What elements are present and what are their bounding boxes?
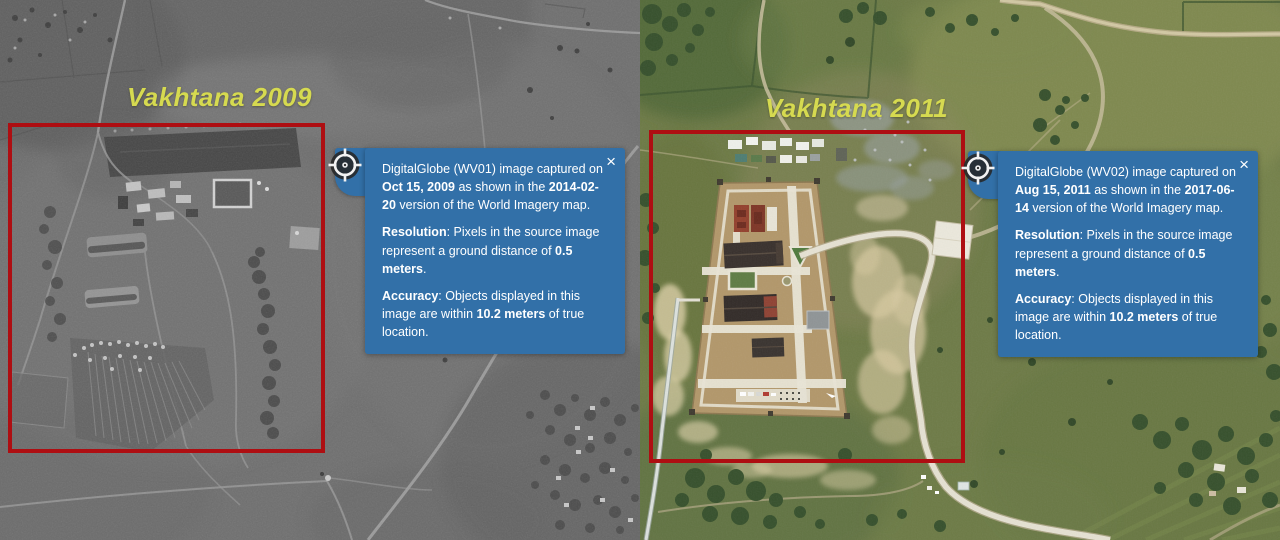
popup-close-button[interactable]: × (606, 153, 616, 170)
highlight-rectangle-2009 (8, 123, 325, 453)
popup-capture-info: DigitalGlobe (WV02) image captured on Au… (1015, 163, 1243, 217)
highlight-rectangle-2011 (649, 130, 965, 463)
popup-resolution-info: Resolution: Pixels in the source image r… (382, 223, 610, 277)
imagery-info-popup-2009: × DigitalGlobe (WV01) image captured on … (365, 148, 625, 354)
popup-resolution-info: Resolution: Pixels in the source image r… (1015, 226, 1243, 280)
map-label-2009: Vakhtana 2009 (127, 84, 312, 110)
crosshair-marker-icon (961, 151, 995, 185)
popup-accuracy-info: Accuracy: Objects displayed in this imag… (382, 287, 610, 341)
popup-capture-info: DigitalGlobe (WV01) image captured on Oc… (382, 160, 610, 214)
map-panel-2011: Vakhtana 2011 × DigitalGlobe (WV02) imag… (640, 0, 1280, 540)
map-panel-2009: Vakhtana 2009 × DigitalGlobe (WV01) imag… (0, 0, 640, 540)
popup-accuracy-info: Accuracy: Objects displayed in this imag… (1015, 290, 1243, 344)
wayback-compare-view: Vakhtana 2009 × DigitalGlobe (WV01) imag… (0, 0, 1280, 540)
popup-close-button[interactable]: × (1239, 156, 1249, 173)
map-label-2011: Vakhtana 2011 (765, 95, 948, 121)
imagery-info-popup-2011: × DigitalGlobe (WV02) image captured on … (998, 151, 1258, 357)
crosshair-marker-icon (328, 148, 362, 182)
